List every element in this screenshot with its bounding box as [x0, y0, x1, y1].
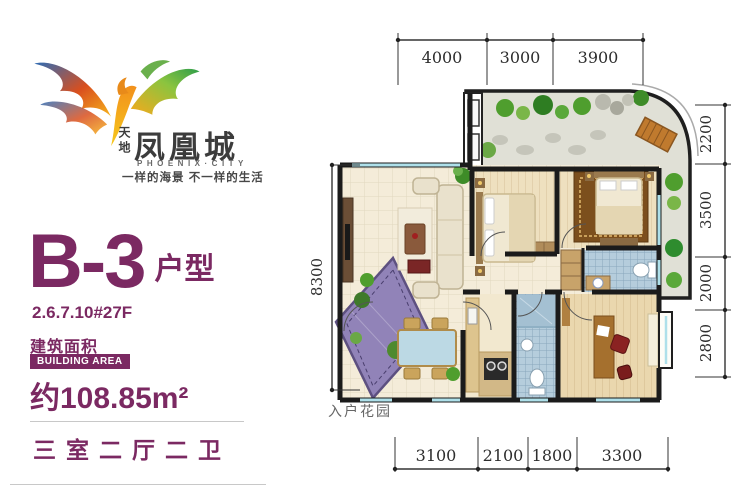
sink [521, 339, 533, 351]
dim-label-top-3: 3900 [578, 48, 619, 67]
bay-window-sill [648, 314, 658, 366]
dining-table [398, 330, 456, 366]
cabinet [408, 260, 430, 273]
plant [446, 367, 460, 381]
sink [593, 278, 603, 288]
dim-label-right-3: 2000 [697, 264, 715, 302]
dim-label-bottom-3: 1800 [532, 446, 573, 465]
sink [468, 308, 477, 324]
dim-label-bottom-1: 3100 [416, 446, 457, 465]
divider-line [10, 484, 266, 485]
dim-label-left-1: 8300 [308, 258, 326, 296]
dim-label-top-1: 4000 [422, 48, 463, 67]
unit-title: B-3户型 [28, 224, 214, 300]
area-value: 约108.85m² [30, 373, 188, 417]
floorplan-page: { "brand": { "prefix": "天地", "name_cn": … [0, 0, 750, 500]
logo-tagline: 一样的海景 不一样的生活 [122, 169, 264, 185]
dim-label-right-1: 2200 [697, 115, 715, 153]
closet [561, 250, 581, 290]
area-label-en-badge: BUILDING AREA [30, 354, 130, 369]
dim-top: 4000 3000 3900 [396, 33, 645, 85]
divider-line [30, 421, 244, 422]
logo-prefix-text: 天地 [116, 126, 133, 156]
room-layout-text: 三室二厅二卫 [33, 431, 231, 465]
dim-label-bottom-4: 3300 [602, 446, 643, 465]
ac-closet [464, 93, 482, 168]
unit-name: B-3 [28, 219, 144, 304]
dim-right: 2200 3500 2000 2800 [695, 103, 731, 379]
floor-plan: 4000 3000 3900 2200 3500 2000 2800 3100 … [305, 18, 750, 490]
dim-bottom: 3100 2100 1800 3300 [393, 437, 670, 472]
dim-label-bottom-2: 2100 [483, 446, 524, 465]
entrance-garden-label: 入户花园 [328, 403, 392, 419]
logo-name-en: PHOENIX·CITY [137, 159, 248, 168]
dim-label-right-2: 3500 [697, 191, 715, 229]
unit-buildings: 2.6.7.10#27F [32, 303, 132, 323]
dim-label-top-2: 3000 [500, 48, 541, 67]
unit-type-label: 户型 [154, 253, 214, 286]
plant [360, 273, 374, 287]
sofa [437, 185, 463, 289]
dim-label-right-4: 2800 [697, 324, 715, 362]
toilet [530, 369, 544, 387]
tv [345, 224, 350, 260]
